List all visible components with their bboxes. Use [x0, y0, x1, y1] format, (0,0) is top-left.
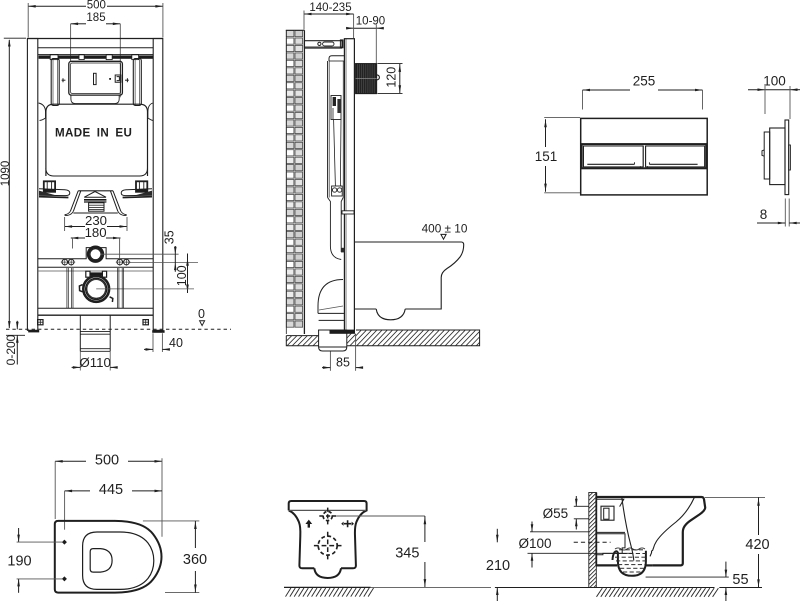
svg-text:445: 445 [99, 482, 123, 498]
svg-text:100: 100 [763, 74, 786, 89]
svg-text:420: 420 [745, 537, 769, 553]
svg-text:360: 360 [183, 552, 207, 568]
svg-text:180: 180 [85, 225, 107, 240]
svg-text:120: 120 [384, 67, 398, 88]
svg-text:10-90: 10-90 [356, 15, 385, 27]
svg-text:MADE IN EU: MADE IN EU [55, 127, 132, 140]
svg-text:55: 55 [732, 572, 748, 588]
svg-text:185: 185 [86, 12, 105, 24]
svg-text:210: 210 [486, 558, 510, 574]
svg-text:Ø110: Ø110 [80, 355, 111, 370]
svg-text:Ø55: Ø55 [543, 506, 569, 521]
svg-text:100: 100 [175, 265, 189, 286]
svg-text:Ø100: Ø100 [518, 536, 551, 551]
svg-text:500: 500 [95, 453, 119, 469]
svg-text:85: 85 [336, 355, 350, 369]
svg-text:1090: 1090 [0, 161, 12, 187]
svg-text:0: 0 [198, 307, 205, 321]
svg-text:140-235: 140-235 [309, 2, 351, 14]
svg-text:0-200: 0-200 [4, 334, 18, 365]
svg-text:400 ± 10: 400 ± 10 [422, 222, 468, 236]
svg-text:255: 255 [633, 74, 656, 89]
svg-text:500: 500 [87, 0, 106, 12]
svg-text:190: 190 [7, 553, 31, 569]
svg-text:40: 40 [169, 336, 183, 350]
svg-text:345: 345 [395, 546, 419, 562]
svg-text:35: 35 [162, 230, 176, 244]
svg-text:151: 151 [535, 149, 558, 164]
svg-text:8: 8 [760, 207, 768, 222]
